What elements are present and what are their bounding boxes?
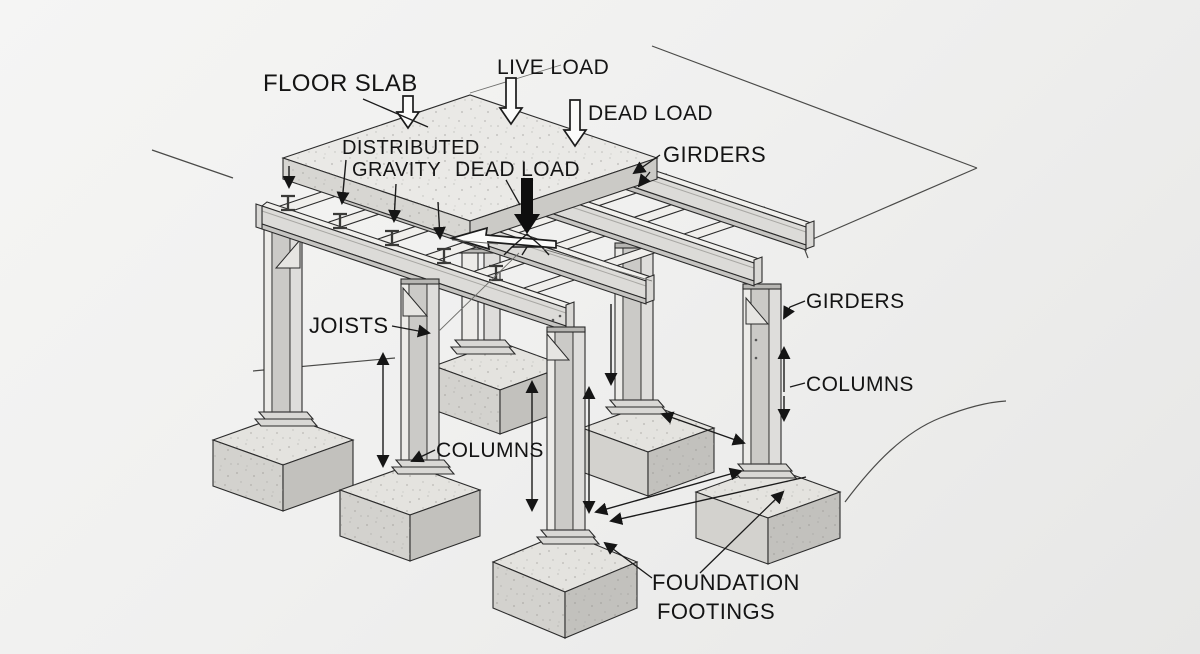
label-dead-load-top: DEAD LOAD — [588, 102, 713, 125]
footing-4 — [493, 532, 637, 638]
label-gravity: GRAVITY — [352, 159, 441, 181]
label-girders-top: GIRDERS — [663, 142, 766, 167]
label-footings: FOOTINGS — [657, 599, 775, 624]
label-foundation: FOUNDATION — [652, 570, 800, 595]
girder-end — [256, 204, 262, 229]
footing-5 — [582, 404, 714, 496]
label-live-load: LIVE LOAD — [497, 56, 609, 79]
girder-end — [566, 302, 574, 330]
label-distributed: DISTRIBUTED — [342, 137, 480, 159]
footing-2 — [340, 465, 480, 561]
label-dead-load-center: DEAD LOAD — [455, 158, 580, 181]
girder-end — [754, 257, 762, 285]
diagram-canvas: FLOOR SLAB LIVE LOAD DEAD LOAD DISTRIBUT… — [0, 0, 1200, 654]
footing-1 — [213, 415, 353, 511]
column-1 — [255, 225, 317, 426]
label-columns-right: COLUMNS — [806, 373, 914, 396]
label-joists: JOISTS — [309, 313, 388, 338]
label-columns-center: COLUMNS — [436, 439, 544, 462]
label-floor-slab: FLOOR SLAB — [263, 70, 418, 97]
label-girders-right: GIRDERS — [806, 290, 904, 313]
girder-end — [806, 221, 814, 249]
structural-diagram: FLOOR SLAB LIVE LOAD DEAD LOAD DISTRIBUT… — [0, 0, 1200, 654]
footing-6 — [696, 466, 840, 564]
footing-3 — [434, 342, 566, 434]
